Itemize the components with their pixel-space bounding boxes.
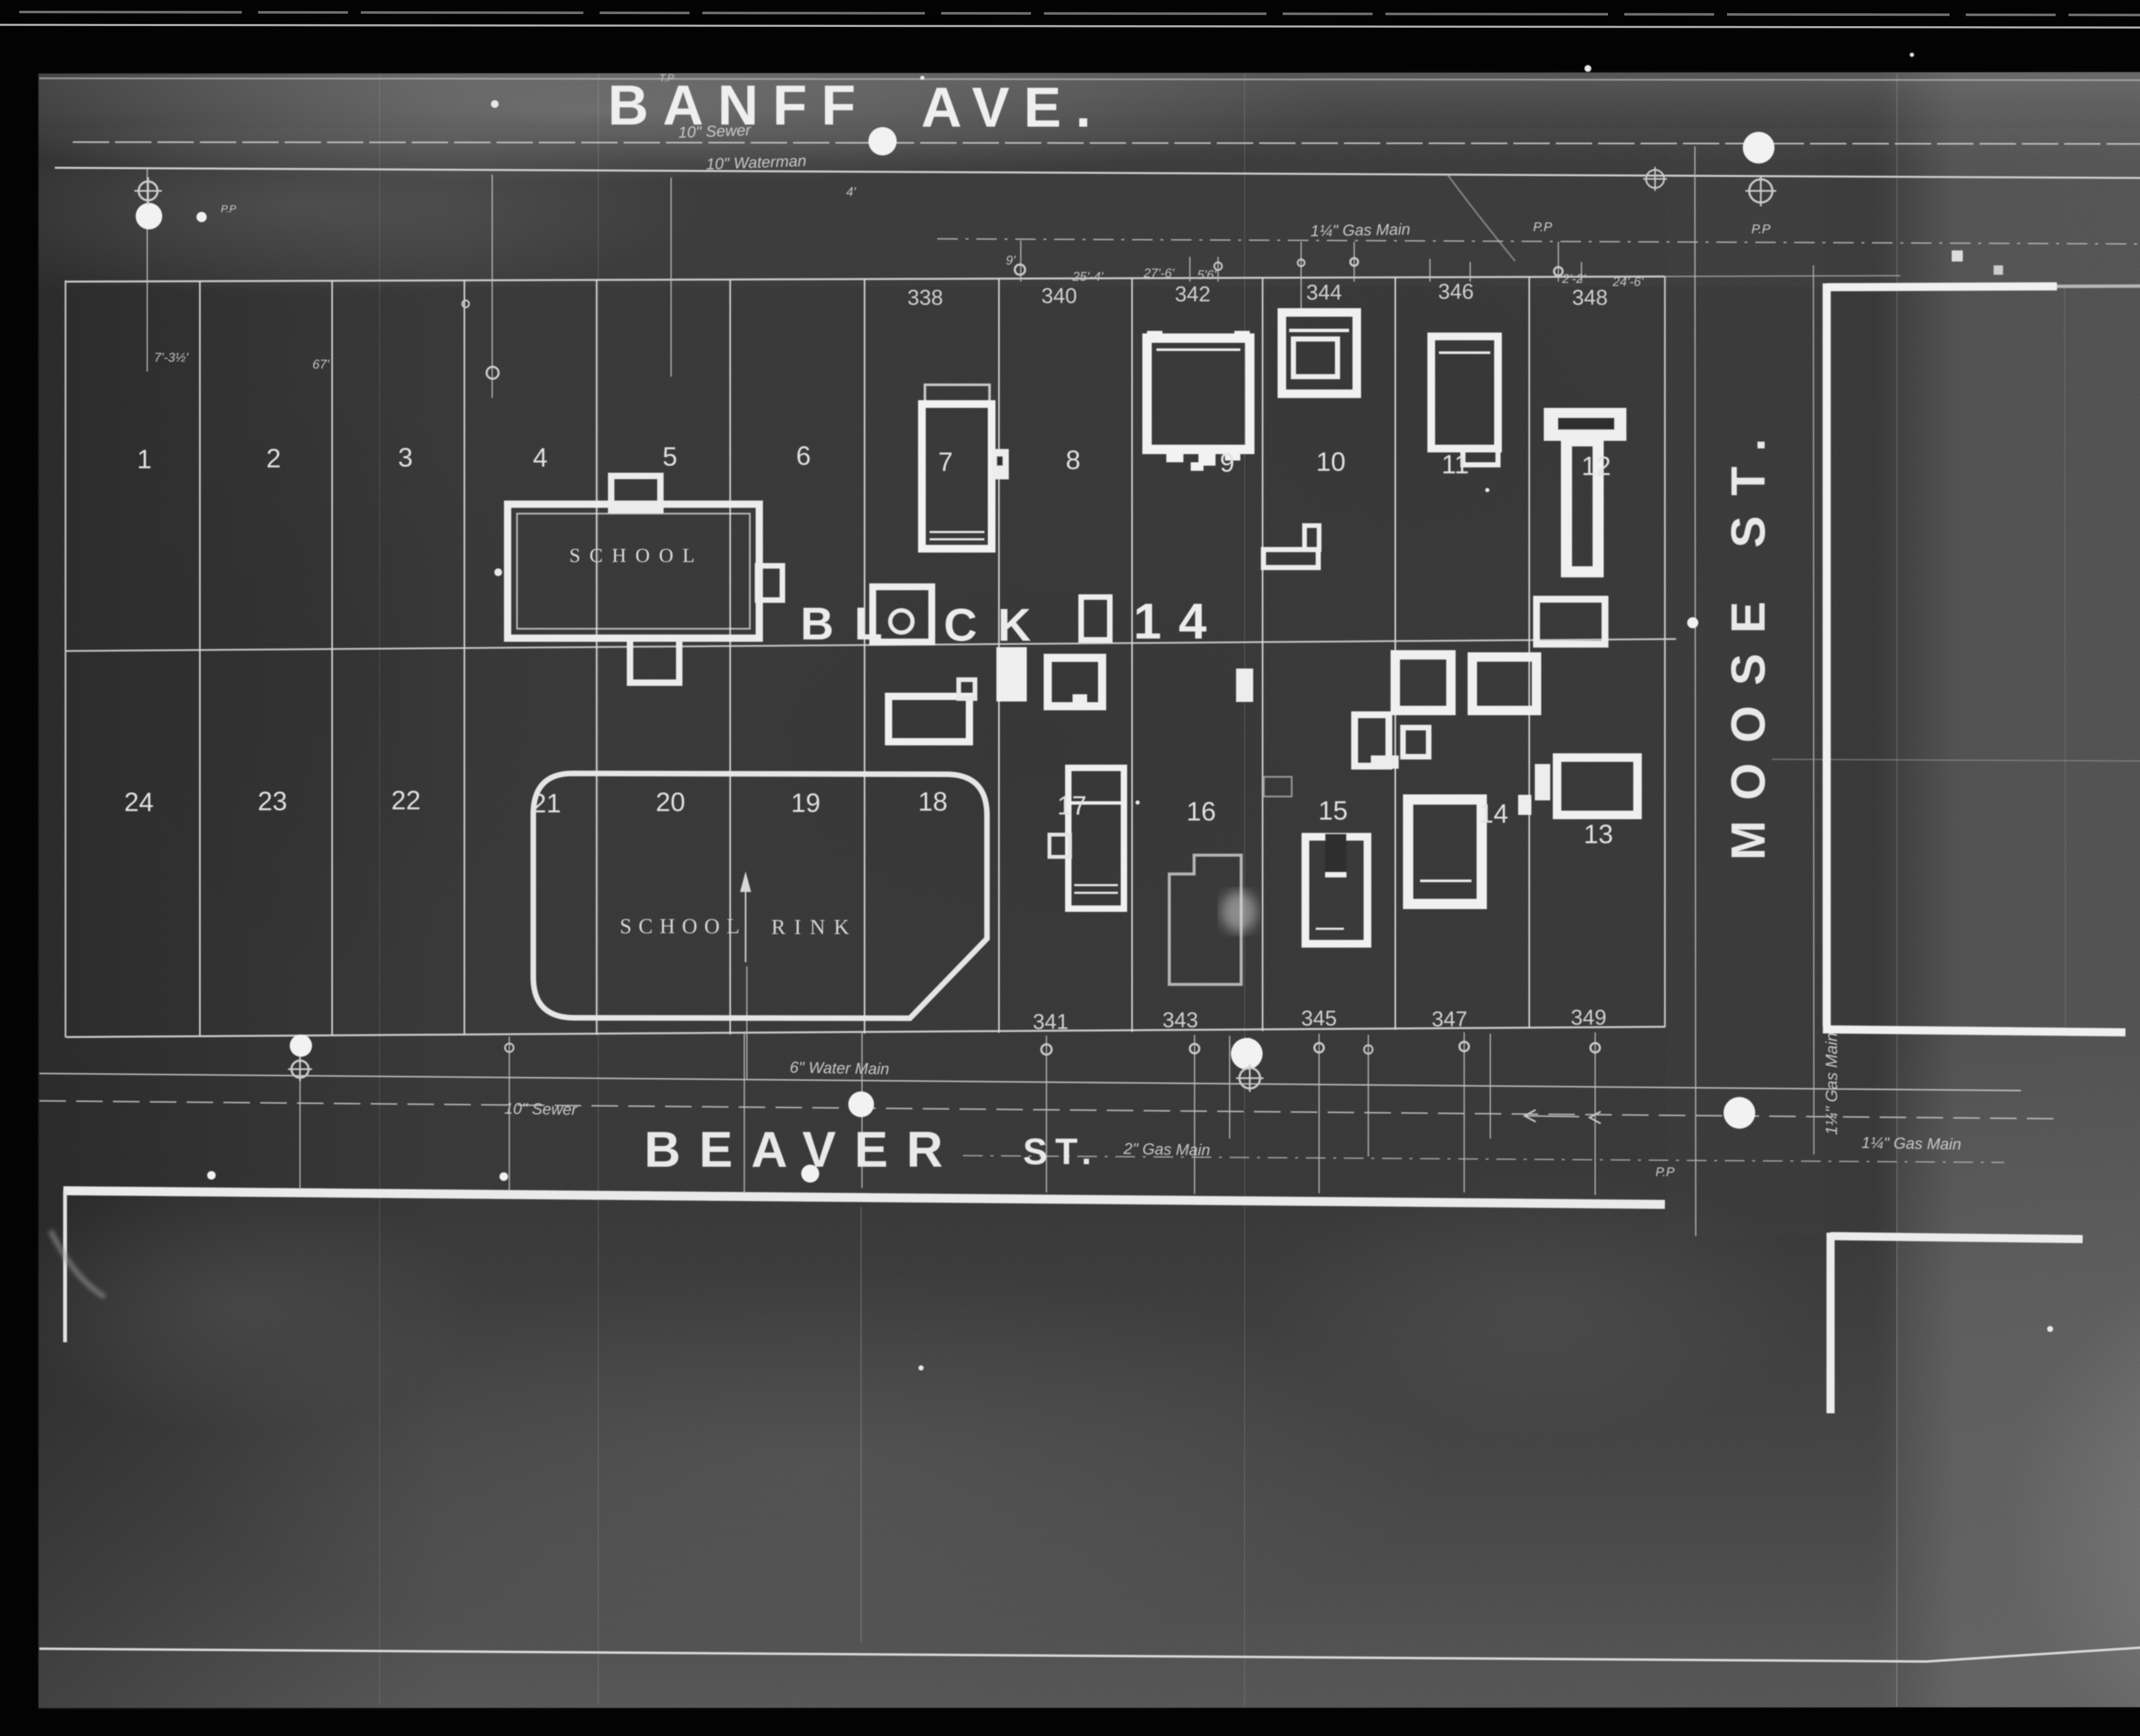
svg-text:16: 16	[1186, 797, 1216, 826]
svg-text:RINK: RINK	[771, 915, 858, 939]
svg-text:P.P: P.P	[1656, 1165, 1675, 1179]
svg-text:CK: CK	[944, 599, 1052, 651]
svg-text:9': 9'	[1006, 253, 1016, 268]
svg-text:AVE.: AVE.	[921, 76, 1105, 139]
svg-text:7: 7	[938, 447, 953, 477]
svg-text:19: 19	[791, 788, 820, 818]
svg-text:349: 349	[1571, 1005, 1606, 1029]
svg-text:345: 345	[1301, 1006, 1337, 1030]
svg-text:8: 8	[1066, 446, 1080, 475]
svg-text:T.P: T.P	[659, 72, 674, 84]
svg-text:1¼" Gas Main: 1¼" Gas Main	[1823, 1033, 1841, 1136]
svg-text:3: 3	[398, 443, 413, 473]
svg-text:P.P: P.P	[1751, 222, 1771, 236]
svg-text:6: 6	[796, 441, 811, 471]
svg-text:17: 17	[1057, 791, 1087, 820]
svg-text:67': 67'	[312, 357, 330, 372]
svg-text:4: 4	[533, 443, 547, 473]
svg-text:P.P: P.P	[221, 203, 236, 215]
svg-text:24'-6': 24'-6'	[1612, 275, 1644, 289]
svg-text:1: 1	[137, 445, 152, 474]
svg-text:346: 346	[1438, 279, 1474, 303]
svg-text:18: 18	[918, 787, 948, 817]
svg-text:2" Gas Main: 2" Gas Main	[1123, 1140, 1210, 1159]
svg-text:7'-3½': 7'-3½'	[154, 351, 189, 365]
svg-text:341: 341	[1033, 1010, 1068, 1034]
svg-text:9: 9	[1220, 448, 1234, 478]
svg-text:10" Sewer: 10" Sewer	[678, 121, 752, 141]
svg-text:SCHOOL: SCHOOL	[620, 914, 746, 938]
svg-text:P.P: P.P	[1533, 220, 1552, 234]
svg-text:23: 23	[258, 787, 287, 816]
svg-text:10: 10	[1316, 447, 1346, 477]
svg-text:MOOSE ST.: MOOSE ST.	[1721, 418, 1775, 860]
svg-text:4': 4'	[846, 185, 856, 199]
svg-text:ST.: ST.	[1023, 1131, 1099, 1172]
svg-text:SCHOOL: SCHOOL	[569, 544, 704, 567]
svg-text:5: 5	[663, 442, 677, 472]
svg-text:348: 348	[1572, 285, 1608, 309]
svg-text:2: 2	[266, 444, 281, 473]
svg-text:25'-4': 25'-4'	[1072, 270, 1104, 284]
svg-text:338: 338	[907, 285, 943, 309]
svg-text:343: 343	[1162, 1008, 1198, 1032]
svg-text:10" Waterman: 10" Waterman	[706, 152, 807, 173]
svg-text:22: 22	[391, 786, 421, 815]
svg-text:11: 11	[1442, 450, 1469, 479]
svg-text:20: 20	[656, 788, 685, 817]
svg-text:6" Water Main: 6" Water Main	[790, 1058, 889, 1078]
svg-text:10" Sewer: 10" Sewer	[504, 1100, 578, 1118]
svg-text:12: 12	[1581, 452, 1611, 481]
svg-text:340: 340	[1041, 284, 1077, 308]
svg-text:BL: BL	[800, 597, 903, 649]
svg-text:14: 14	[1479, 799, 1508, 829]
svg-text:347: 347	[1432, 1007, 1467, 1031]
svg-text:1¼" Gas Main: 1¼" Gas Main	[1310, 220, 1410, 240]
svg-text:5'6': 5'6'	[1197, 268, 1217, 282]
svg-text:344: 344	[1306, 280, 1342, 304]
svg-text:24: 24	[124, 788, 154, 817]
svg-text:21: 21	[532, 789, 561, 818]
svg-text:2'-2': 2'-2'	[1562, 272, 1586, 286]
svg-text:27'-6': 27'-6'	[1143, 266, 1175, 280]
svg-text:1¼" Gas Main: 1¼" Gas Main	[1861, 1134, 1962, 1153]
svg-text:15: 15	[1318, 796, 1348, 826]
svg-text:BEAVER: BEAVER	[644, 1121, 961, 1178]
svg-text:13: 13	[1584, 820, 1613, 849]
svg-text:342: 342	[1175, 282, 1210, 306]
svg-text:14: 14	[1133, 593, 1224, 650]
